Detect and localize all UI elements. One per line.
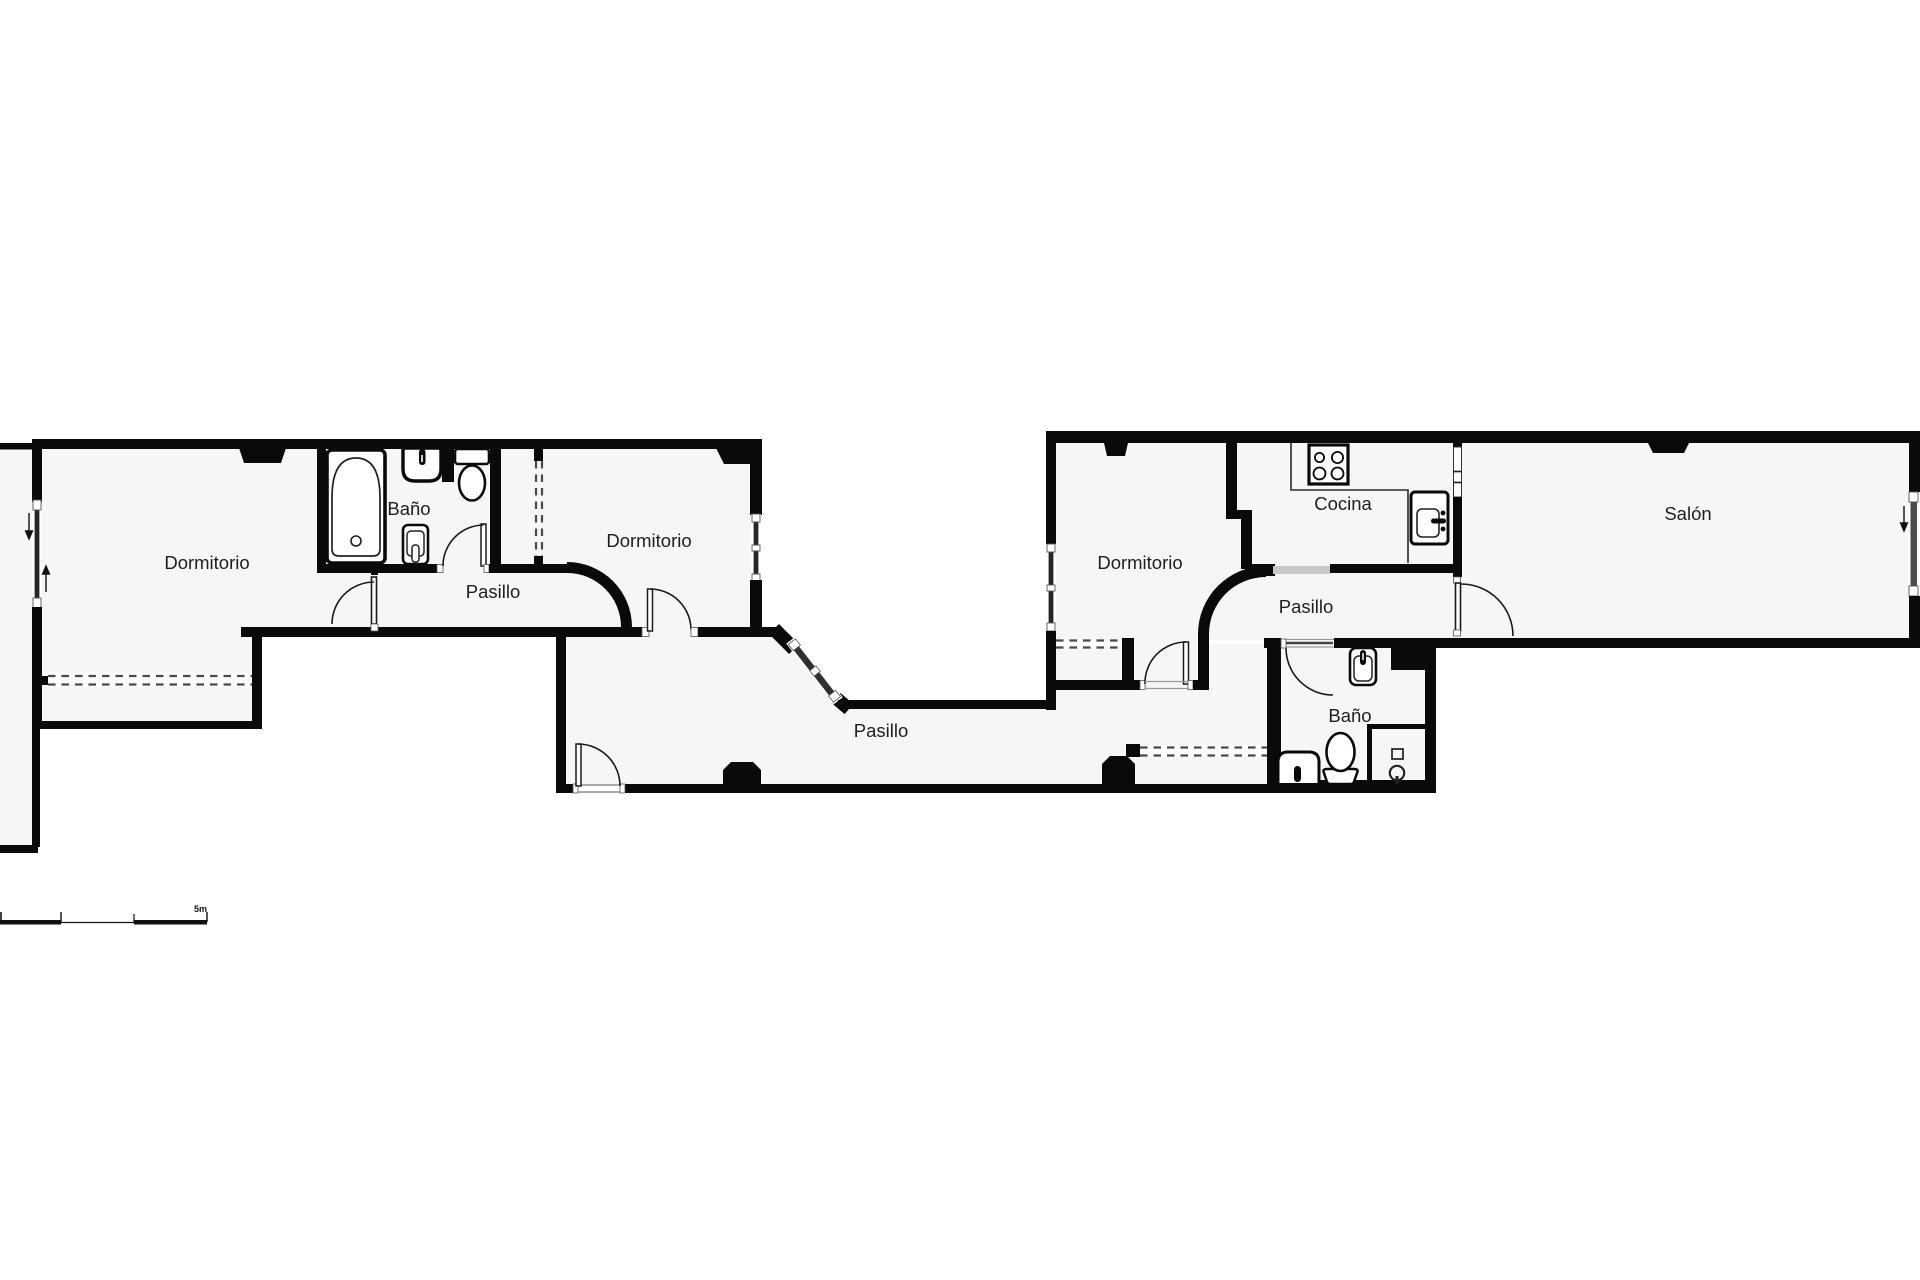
svg-text:Dormitorio: Dormitorio (606, 530, 691, 551)
svg-text:Baño: Baño (1328, 705, 1371, 726)
svg-text:Dormitorio: Dormitorio (1097, 552, 1182, 573)
svg-text:Salón: Salón (1664, 503, 1711, 524)
svg-text:5m: 5m (194, 904, 207, 914)
svg-text:Cocina: Cocina (1314, 493, 1372, 514)
svg-text:Pasillo: Pasillo (854, 720, 909, 741)
svg-text:Pasillo: Pasillo (1279, 596, 1334, 617)
svg-text:Baño: Baño (387, 498, 430, 519)
svg-text:Dormitorio: Dormitorio (164, 552, 249, 573)
svg-text:Pasillo: Pasillo (466, 581, 521, 602)
